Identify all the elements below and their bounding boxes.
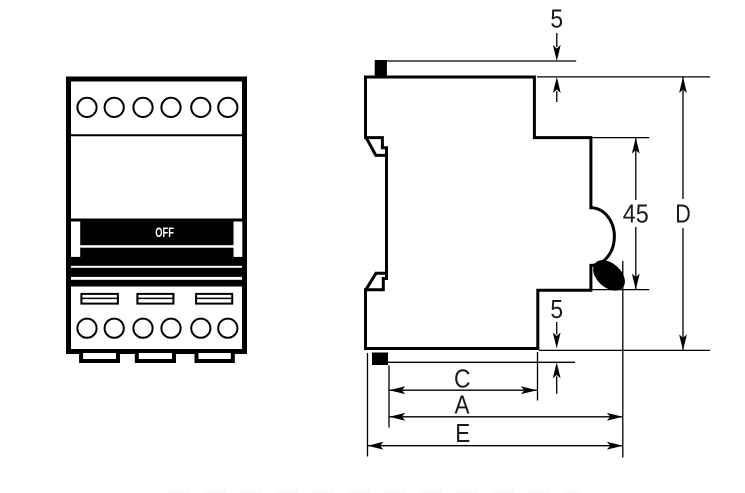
svg-text:D: D (675, 198, 691, 228)
svg-text:OFF: OFF (155, 225, 174, 240)
svg-text:E: E (455, 418, 470, 448)
svg-text:5: 5 (550, 294, 563, 324)
svg-text:5: 5 (550, 4, 563, 34)
svg-text:45: 45 (623, 199, 649, 229)
svg-text:A: A (455, 390, 471, 420)
